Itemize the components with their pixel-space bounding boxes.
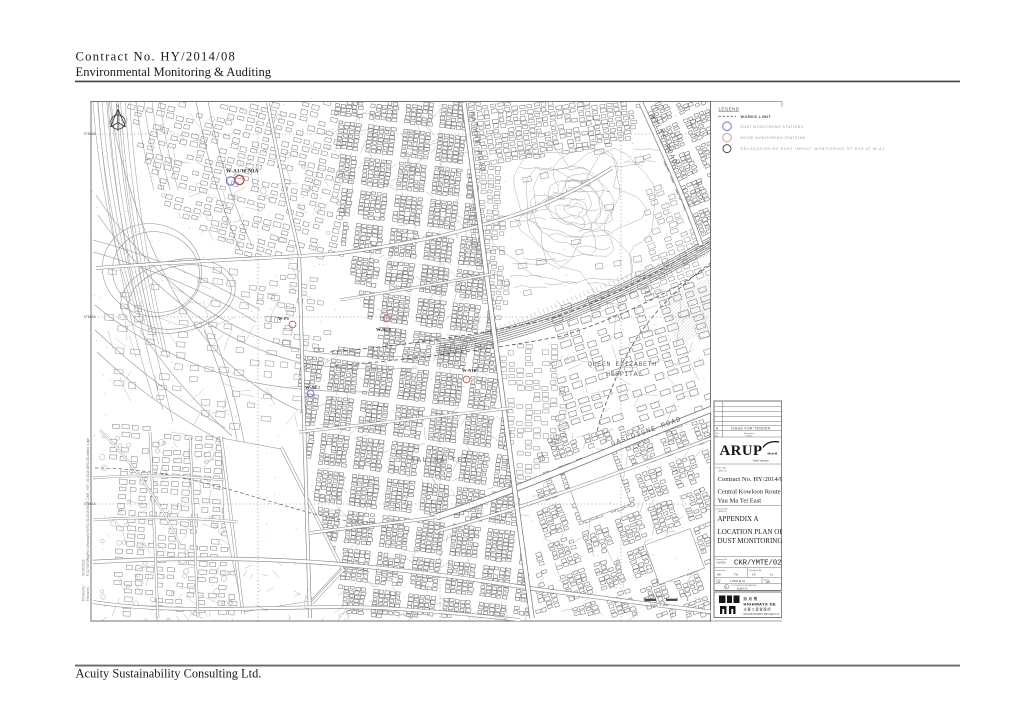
svg-text:1:2500 @ A1: 1:2500 @ A1 xyxy=(730,579,746,583)
svg-text:N: N xyxy=(116,105,120,110)
svg-text:LEGEND: LEGEND xyxy=(719,107,740,112)
svg-text:Mott M: Mott M xyxy=(768,452,778,456)
svg-text:RELOCATION OF DUST IMPACT MONI: RELOCATION OF DUST IMPACT MONITORING OF … xyxy=(741,147,885,151)
svg-text:1:W: 1:W xyxy=(716,581,721,584)
svg-text:Yau Ma Tei East: Yau Ma Tei East xyxy=(718,498,762,505)
svg-text:主要工程管理虎: 主要工程管理虎 xyxy=(744,607,772,612)
svg-text:0000000: 0000000 xyxy=(717,562,727,565)
svg-text:W-P1: W-P1 xyxy=(278,316,290,321)
svg-text:Designed By: Designed By xyxy=(749,570,762,572)
svg-text:HOSPITAL: HOSPITAL xyxy=(606,371,643,379)
svg-text:W-A1/W-N1A: W-A1/W-N1A xyxy=(226,169,259,175)
svg-text:of Rev: of Rev xyxy=(746,435,753,437)
svg-text:ISSUE FOR TENDER: ISSUE FOR TENDER xyxy=(731,427,771,431)
svg-text:(1/8 P-8): (1/8 P-8) xyxy=(718,470,727,472)
svg-text:HIGHWAYS DE: HIGHWAYS DE xyxy=(744,602,776,607)
svg-text:F:\C\YMT\WayFor Otherslan\YMT0: F:\C\YMT\WayFor Otherslan\YMT01.02.2016 … xyxy=(86,438,90,576)
svg-text:W-A8: W-A8 xyxy=(305,385,317,390)
svg-text:APPENDIX A: APPENDIX A xyxy=(718,515,759,523)
svg-text:QUEEN ELIZABETH: QUEEN ELIZABETH xyxy=(588,361,657,369)
svg-text:路政署: 路政署 xyxy=(744,596,759,601)
svg-text:KO: KO xyxy=(752,573,756,577)
svg-text:Filename :: Filename : xyxy=(86,586,90,601)
svg-text:DUST MONITORING STATIONS: DUST MONITORING STATIONS xyxy=(741,125,804,129)
svg-text:SCALE 1:2500: SCALE 1:2500 xyxy=(650,604,669,607)
svg-text:(8/8-P-8): (8/8-P-8) xyxy=(718,511,727,513)
svg-text:WORKS LIMIT: WORKS LIMIT xyxy=(741,115,772,119)
svg-text:Acuity Sustainability Consulti: Acuity Sustainability Consulting Ltd. xyxy=(76,667,262,681)
svg-text:E7B02A: E7B02A xyxy=(84,315,96,319)
svg-text:Project title: Project title xyxy=(716,467,728,470)
svg-text:Central Kowloon Route -: Central Kowloon Route - xyxy=(718,489,785,496)
svg-text:NOISE MONITORING STATIONS: NOISE MONITORING STATIONS xyxy=(741,136,806,140)
svg-text:No.: No. xyxy=(715,435,719,437)
svg-text:TW: TW xyxy=(734,573,739,577)
svg-text:MAJOR WORKS PROJECT M: MAJOR WORKS PROJECT M xyxy=(744,612,779,616)
svg-text:Contract No. HY/2014/08: Contract No. HY/2014/08 xyxy=(718,476,787,483)
svg-text:Drawn By: Drawn By xyxy=(716,569,726,572)
svg-text:W-N2A: W-N2A xyxy=(376,327,392,332)
svg-text:Drawing title: Drawing title xyxy=(716,508,729,511)
svg-text:ARUP: ARUP xyxy=(720,443,763,459)
svg-text:Contract No. HY/2014/08: Contract No. HY/2014/08 xyxy=(76,50,237,64)
svg-text:E7B03A: E7B03A xyxy=(84,132,96,136)
svg-text:Joint Venture: Joint Venture xyxy=(753,459,770,463)
svg-text:W-N1B: W-N1B xyxy=(462,368,477,373)
svg-text:WK: WK xyxy=(766,580,770,584)
svg-text:KL: KL xyxy=(770,573,774,577)
svg-text:COPYRIGHT RESERVED: COPYRIGHT RESERVED xyxy=(731,585,757,587)
svg-text:YAU MA TEI: YAU MA TEI xyxy=(411,457,469,465)
svg-text:WK: WK xyxy=(717,573,721,577)
svg-text:Environmental Monitoring & Aud: Environmental Monitoring & Auditing xyxy=(76,65,272,79)
svg-text:0 50 100 m: 0 50 100 m xyxy=(648,595,664,598)
